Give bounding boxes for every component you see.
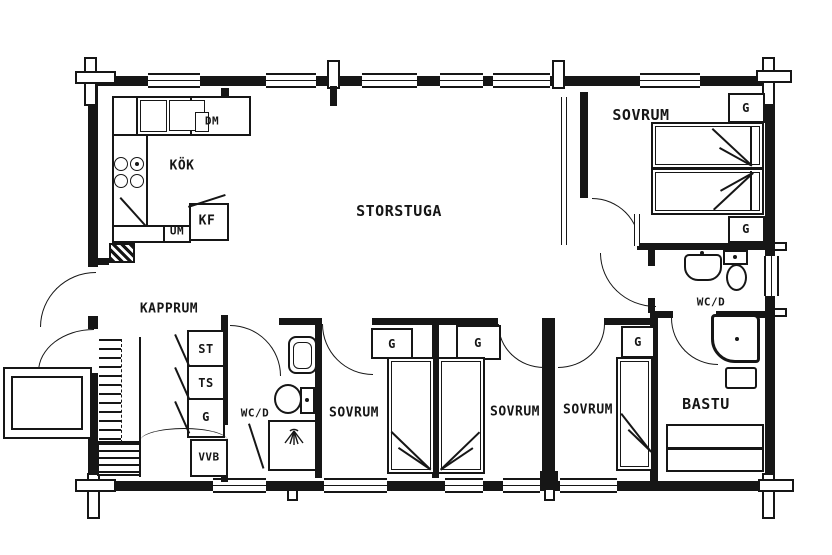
- window: [640, 73, 700, 88]
- porch-inner: [11, 376, 83, 430]
- door-arc-bedroom-s1: [322, 324, 373, 375]
- log-joint-icon: [544, 488, 555, 501]
- room-label-bedroom-s3: SOVRUM: [563, 403, 613, 418]
- door-arc-entrance-upper: [40, 272, 96, 327]
- window: [493, 73, 550, 88]
- room-label-living-room: STORSTUGA: [356, 202, 442, 220]
- wardrobe-label: G: [634, 335, 642, 349]
- bed-mattress: [620, 361, 649, 467]
- room-label-wc-ne: WC/D: [697, 296, 726, 309]
- door-arc-bedroom-s3: [558, 324, 605, 368]
- room-label-bedroom-s1: SOVRUM: [329, 406, 379, 421]
- log-joint-icon: [327, 60, 340, 89]
- wall-pocket-line: [561, 97, 567, 245]
- oven-label: UM: [170, 225, 184, 238]
- window: [560, 478, 617, 493]
- shower-spray-icon: [281, 428, 307, 446]
- room-label-hallway: KAPPRUM: [140, 302, 198, 317]
- log-joint-icon: [756, 70, 792, 83]
- wardrobe-label: G: [202, 410, 210, 424]
- bed-mattress: [391, 361, 431, 470]
- door-leaf-wc-sw: [248, 423, 264, 468]
- shower-drain-dot: [735, 337, 739, 341]
- drying-closet-label: TS: [198, 376, 213, 390]
- room-label-kitchen: KÖK: [170, 159, 195, 174]
- door-arc-entrance-lower: [38, 329, 94, 372]
- wall-stub: [330, 86, 337, 106]
- sink-icon: [140, 100, 167, 132]
- window: [440, 73, 483, 88]
- log-joint-icon: [552, 60, 565, 89]
- water-heater-label: VVB: [198, 451, 219, 464]
- stairs-treads: [99, 339, 121, 442]
- stairs-dashed-line: [121, 339, 122, 443]
- log-joint-icon: [287, 489, 298, 501]
- log-joint-icon: [75, 71, 116, 84]
- dishwasher-label: DM: [205, 115, 219, 128]
- stove-burner-icon: [130, 174, 144, 188]
- washbasin-icon: [684, 254, 722, 281]
- log-joint-icon: [773, 242, 787, 251]
- stove-burner-icon: [114, 174, 128, 188]
- toilet-bowl-icon: [726, 264, 747, 291]
- wardrobe-label: G: [742, 101, 750, 115]
- faucet-dot: [700, 251, 704, 255]
- sauna-bench: [666, 424, 764, 449]
- cleaning-closet-label: ST: [198, 342, 213, 356]
- vanity-basin-icon: [293, 342, 312, 369]
- window: [362, 73, 417, 88]
- wardrobe-label: G: [742, 222, 750, 236]
- room-label-wc-sw: WC/D: [241, 407, 270, 420]
- stove-burner-icon: [114, 157, 128, 171]
- stairs-lower-steps: [97, 441, 141, 476]
- window: [764, 256, 779, 296]
- room-label-bedroom-s2: SOVRUM: [490, 405, 540, 420]
- toilet-bowl-icon: [274, 384, 302, 414]
- blanket-fold-line: [750, 126, 752, 166]
- wall-south-corridor: [372, 318, 498, 325]
- stove-knob-dot: [135, 162, 139, 166]
- wall-exterior-bottom: [88, 481, 775, 491]
- toilet-button-dot: [733, 255, 737, 259]
- door-arc-bedroom-s2: [498, 324, 544, 368]
- wall-south-corridor: [604, 318, 651, 325]
- door-arc-wc-sw: [230, 325, 281, 376]
- counter-divider: [136, 98, 138, 134]
- wardrobe-label: G: [388, 337, 396, 351]
- window: [503, 478, 540, 493]
- window: [266, 73, 316, 88]
- wall-bedroom-ne-south: [637, 243, 767, 250]
- wall-return-stub: [96, 258, 109, 265]
- door-leaf-bedroom-ne: [634, 214, 640, 246]
- blanket-fold-line: [750, 171, 752, 211]
- log-joint-icon: [758, 479, 794, 492]
- wall-post: [540, 471, 558, 488]
- log-joint-icon: [773, 308, 787, 317]
- floor-plan: DM UM KF KÖK STORSTUGA SOVRUM G G WC/D K…: [0, 0, 832, 555]
- fridge-freezer-label: KF: [199, 214, 216, 229]
- sauna-bench: [666, 448, 764, 472]
- room-label-sauna: BASTU: [682, 395, 730, 413]
- window: [148, 73, 200, 88]
- door-arc-bedroom-ne: [592, 198, 640, 246]
- closet-divider: [187, 365, 225, 367]
- window: [445, 478, 483, 493]
- wall-bedroom-ne-west: [580, 92, 588, 198]
- wardrobe-label: G: [474, 336, 482, 350]
- door-arc-wc-ne: [600, 253, 656, 307]
- sauna-heater-icon: [725, 367, 757, 389]
- toilet-button-dot: [305, 398, 309, 402]
- log-joint-icon: [75, 479, 116, 492]
- closet-divider: [187, 398, 225, 400]
- wall-sauna-north: [650, 311, 673, 318]
- counter-divider: [163, 225, 165, 243]
- chimney-icon: [109, 243, 135, 263]
- window: [324, 478, 387, 493]
